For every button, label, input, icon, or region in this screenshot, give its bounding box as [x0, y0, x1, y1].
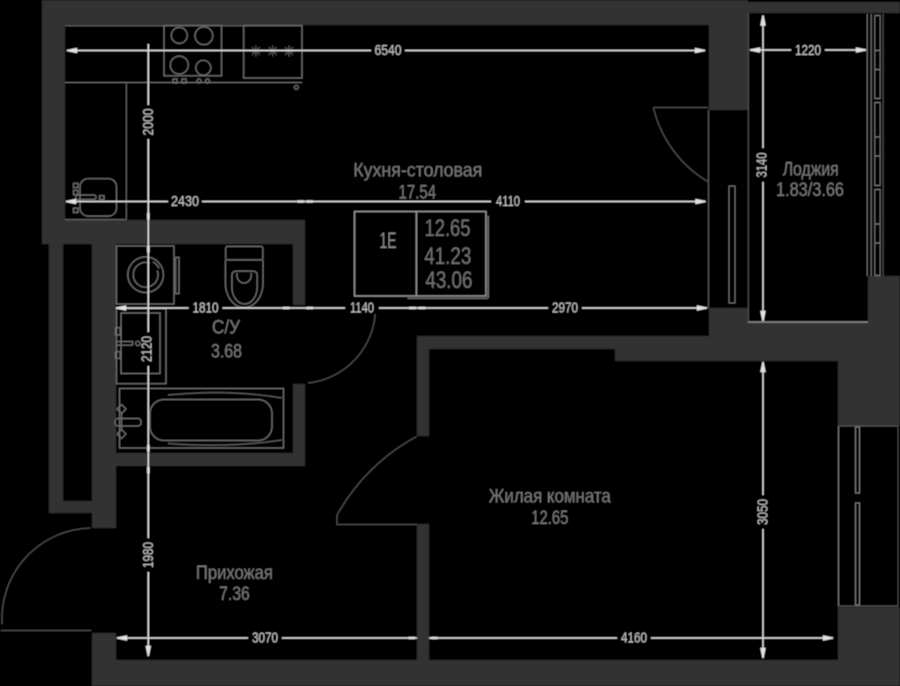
svg-text:1980: 1980	[140, 542, 157, 568]
svg-text:6540: 6540	[375, 42, 402, 59]
svg-text:4160: 4160	[621, 630, 647, 647]
svg-text:12.65: 12.65	[425, 215, 471, 242]
svg-text:43.06: 43.06	[425, 267, 472, 294]
svg-text:1220: 1220	[795, 42, 821, 59]
svg-text:2120: 2120	[139, 336, 156, 362]
svg-text:1810: 1810	[193, 300, 219, 317]
svg-text:3050: 3050	[755, 499, 772, 525]
svg-text:2000: 2000	[140, 109, 157, 136]
svg-text:41.23: 41.23	[424, 243, 471, 270]
svg-text:Прихожая: Прихожая	[196, 563, 273, 584]
svg-text:4110: 4110	[496, 193, 520, 210]
svg-text:Жилая комната: Жилая комната	[489, 487, 611, 508]
svg-text:3.68: 3.68	[211, 342, 242, 363]
svg-text:3070: 3070	[252, 630, 278, 647]
svg-text:2430: 2430	[171, 193, 199, 210]
svg-text:Лоджия: Лоджия	[783, 160, 839, 181]
svg-text:12.65: 12.65	[531, 508, 568, 529]
svg-text:1Е: 1Е	[380, 228, 397, 253]
svg-text:1140: 1140	[350, 300, 374, 317]
svg-text:7.36: 7.36	[219, 584, 250, 605]
svg-text:С/У: С/У	[212, 318, 241, 339]
svg-text:Кухня-столовая: Кухня-столовая	[353, 161, 482, 182]
svg-text:2970: 2970	[552, 300, 578, 317]
svg-text:3140: 3140	[754, 153, 771, 178]
svg-text:17.54: 17.54	[399, 183, 437, 204]
svg-text:1.83/3.66: 1.83/3.66	[776, 180, 844, 201]
